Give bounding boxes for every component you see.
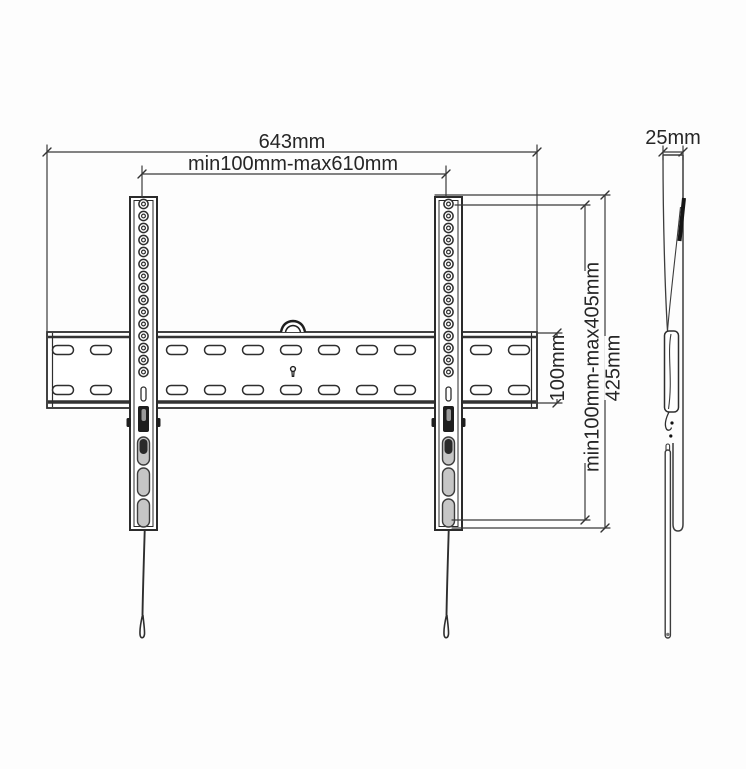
side-plate-left-edge [663,155,668,331]
dim-rail-height: 100mm [537,329,569,407]
side-bracket-slant [668,207,681,331]
dim-rail-height-label: 100mm [547,335,569,402]
dim-hole-range-horizontal-label: min100mm-max610mm [188,153,398,175]
front-view [47,197,537,638]
technical-drawing-page: 643mm min100mm-max610mm 100mm [0,0,746,769]
side-rail-profile [665,331,679,412]
tv-mount-technical-drawing: 643mm min100mm-max610mm 100mm [0,0,746,769]
side-latch-pin-bottom [669,434,672,437]
side-view [663,155,684,638]
side-pull-rod [665,450,670,638]
side-latch-hook [665,412,671,430]
center-hanger-dome [281,321,305,332]
dim-total-width-label: 643mm [259,131,326,153]
left-bracket [127,197,161,530]
dim-hole-range-vertical-label: min100mm-max405mm [582,262,604,472]
left-safety-cord [140,531,145,638]
dim-depth-label: 25mm [645,127,701,149]
dim-hole-range-horizontal: min100mm-max610mm [138,153,450,197]
right-safety-cord [444,531,449,638]
side-rod-tip [666,633,669,636]
dim-bracket-height-label: 425mm [603,335,625,402]
wall-rail [47,321,537,408]
side-latch-pin-top [670,421,673,424]
right-bracket [432,197,466,530]
